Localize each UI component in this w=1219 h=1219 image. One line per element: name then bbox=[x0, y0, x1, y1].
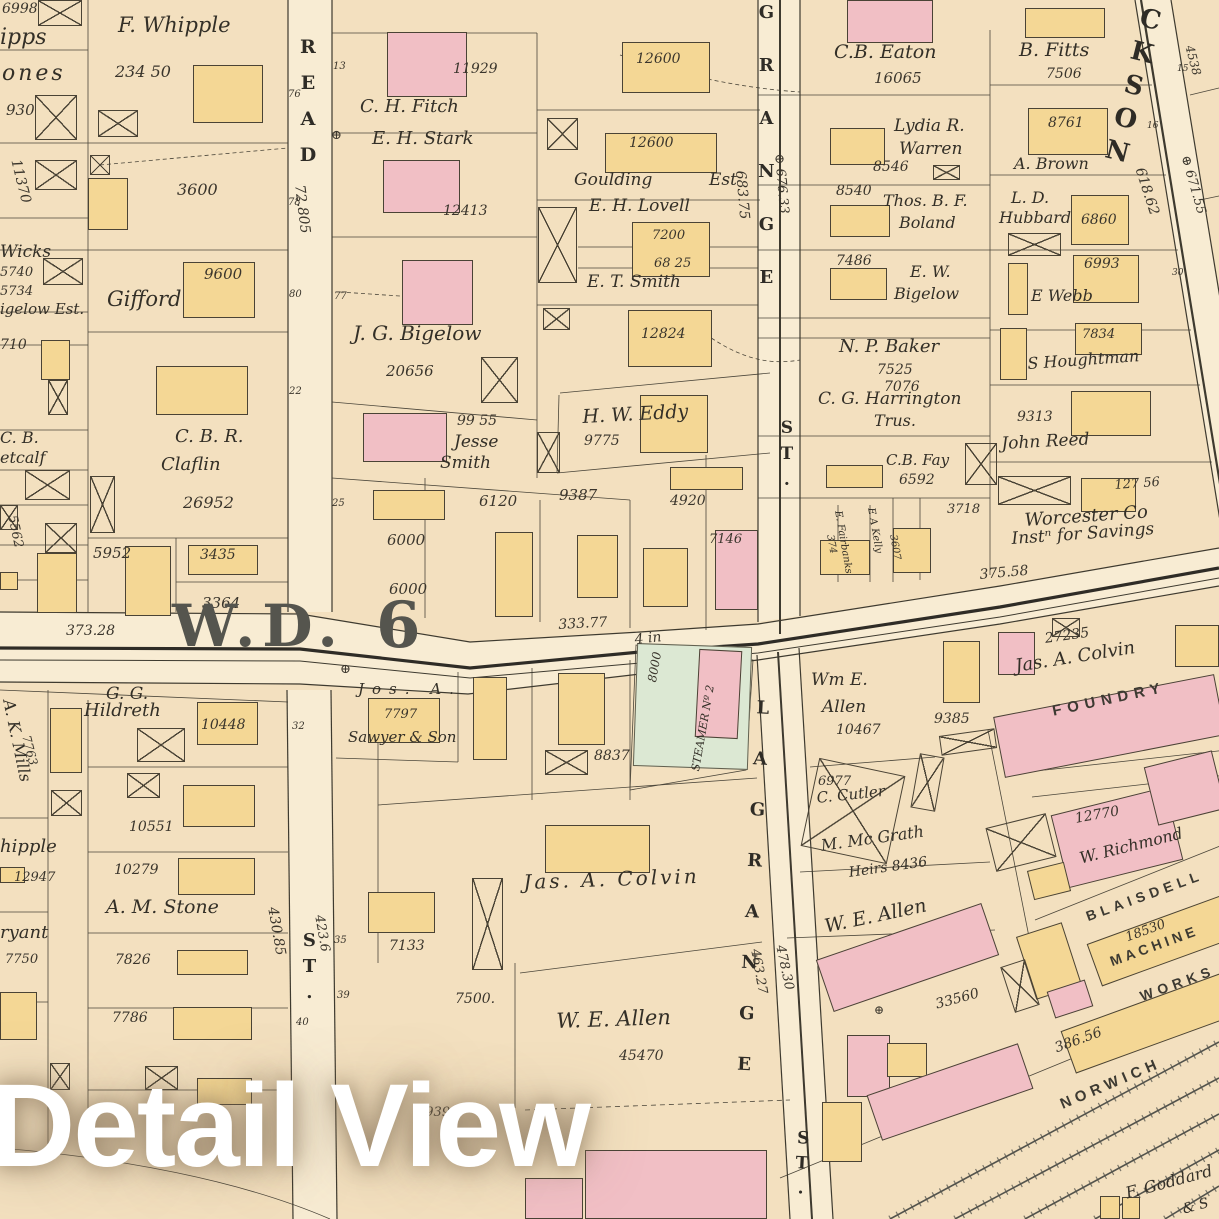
map-label: Jas. A. Colvin bbox=[1014, 639, 1136, 677]
map-label: BLAISDELL bbox=[1084, 868, 1205, 924]
map-label: 11929 bbox=[453, 62, 498, 77]
map-label: 30 bbox=[1172, 269, 1183, 278]
map-label: ST. bbox=[777, 418, 795, 496]
map-label: E. H. Stark bbox=[372, 130, 474, 149]
map-label: C. Cutler bbox=[816, 784, 886, 807]
map-label: 12770 bbox=[1074, 804, 1120, 826]
map-label: Jas. A. Colvin bbox=[523, 866, 700, 893]
map-label: hipple bbox=[0, 838, 57, 857]
map-label: 8546 bbox=[873, 160, 909, 175]
map-label: Hildreth bbox=[84, 702, 161, 721]
map-label: C. H. Fitch bbox=[360, 98, 459, 117]
map-label: 375.58 bbox=[979, 564, 1029, 583]
map-label: 3718 bbox=[947, 503, 980, 517]
map-label: 618.62 bbox=[1132, 166, 1161, 217]
map-label: 39 bbox=[337, 991, 350, 1002]
watermark-text: Detail View bbox=[0, 1058, 589, 1194]
labels-layer: 6998ippsones93011370Wicks57405734igelow … bbox=[0, 0, 1219, 1219]
map-label: 127 56 bbox=[1114, 476, 1160, 493]
map-label: John Reed bbox=[1001, 431, 1090, 453]
map-label: 3435 bbox=[200, 548, 236, 563]
map-label: 15 bbox=[1177, 65, 1188, 74]
map-label: ⊕ 671.55 bbox=[1178, 154, 1208, 216]
map-label: 72.805 bbox=[291, 184, 312, 234]
map-label: C. G. Harrington bbox=[818, 391, 962, 409]
map-label: NORWICH bbox=[1058, 1056, 1164, 1113]
map-label: L. D. bbox=[1011, 190, 1049, 207]
map-label: 68 25 bbox=[654, 257, 691, 271]
map-label: E A Kelly bbox=[865, 507, 883, 554]
map-label: 77 bbox=[334, 292, 347, 303]
map-label: 7786 bbox=[112, 1011, 148, 1026]
map-label: 386.56 bbox=[1053, 1025, 1104, 1056]
map-label: 7486 bbox=[836, 254, 872, 269]
map-label: 8761 bbox=[1048, 116, 1084, 131]
map-label: S Houghtman bbox=[1027, 348, 1140, 373]
map-label: 6 bbox=[376, 592, 428, 659]
map-label: 683.75 bbox=[732, 170, 751, 220]
map-label: 8837 bbox=[594, 749, 630, 764]
map-label: 10448 bbox=[201, 718, 246, 733]
map-label: 8540 bbox=[836, 184, 872, 199]
map-label: WORKS bbox=[1138, 963, 1217, 1004]
map-label: 6860 bbox=[1081, 213, 1117, 228]
map-label: ones bbox=[2, 62, 66, 85]
map-label: Gifford bbox=[107, 288, 182, 310]
map-label: ⊕ bbox=[874, 1004, 884, 1017]
map-label: 3600 bbox=[177, 182, 218, 199]
map-label: 25 bbox=[332, 499, 345, 510]
map-label: 9387 bbox=[559, 488, 597, 504]
map-label: Goulding bbox=[574, 172, 652, 190]
map-label: 10467 bbox=[836, 723, 881, 738]
map-label: 12600 bbox=[629, 136, 674, 151]
map-label: 9775 bbox=[584, 434, 620, 449]
map-label: 16 bbox=[1147, 122, 1158, 131]
map-label: 333.77 bbox=[558, 615, 608, 632]
map-label: 5740 bbox=[0, 266, 33, 280]
map-label: 6592 bbox=[899, 473, 935, 488]
map-label: Jos. A. bbox=[358, 682, 462, 698]
map-label: 7506 bbox=[1046, 67, 1082, 82]
map-label: & S bbox=[1181, 1196, 1210, 1217]
map-label: B. Fitts bbox=[1019, 41, 1089, 61]
map-label: W. E. Allen bbox=[556, 1006, 671, 1032]
map-label: A. Brown bbox=[1014, 156, 1089, 173]
map-label: 930 bbox=[6, 103, 35, 119]
map-label: 7750 bbox=[5, 953, 38, 967]
map-label: ⊕ bbox=[331, 129, 342, 143]
map-label: READ bbox=[297, 36, 317, 180]
atlas-map: 6998ippsones93011370Wicks57405734igelow … bbox=[0, 0, 1219, 1219]
map-label: 9313 bbox=[1017, 410, 1053, 425]
map-label: J. G. Bigelow bbox=[353, 323, 481, 344]
map-label: 5734 bbox=[0, 285, 33, 299]
map-label: 12824 bbox=[641, 327, 686, 342]
map-label: Sawyer & Son bbox=[348, 730, 456, 746]
map-label: M. Mc Grath bbox=[820, 824, 925, 855]
map-label: E. T. Smith bbox=[587, 274, 681, 292]
map-label: 12947 bbox=[14, 871, 55, 885]
map-label: C.B. Fay bbox=[886, 453, 949, 469]
map-label: 12600 bbox=[636, 52, 681, 67]
map-label: 11370 bbox=[8, 158, 33, 205]
map-label: 12413 bbox=[443, 204, 488, 219]
map-label: 9385 bbox=[934, 712, 970, 727]
map-label: Jesse bbox=[454, 434, 498, 452]
map-label: 33560 bbox=[934, 986, 981, 1012]
map-label: 20656 bbox=[386, 364, 434, 380]
map-label: Wicks bbox=[0, 244, 51, 262]
map-label: FOUNDRY bbox=[1051, 680, 1167, 719]
map-label: 7146 bbox=[709, 533, 742, 547]
map-label: 6998 bbox=[2, 2, 38, 17]
map-label: Trus. bbox=[874, 413, 916, 430]
map-label: N. P. Baker bbox=[839, 338, 939, 357]
map-label: E. H. Lovell bbox=[589, 198, 690, 216]
map-label: 5562 bbox=[5, 514, 25, 549]
map-label: 40 bbox=[296, 1018, 309, 1029]
map-label: 27235 bbox=[1044, 626, 1090, 647]
map-label: 374 bbox=[824, 534, 838, 555]
map-label: 26952 bbox=[183, 495, 234, 512]
map-label: Warren bbox=[899, 141, 962, 159]
map-label: Hubbard bbox=[999, 210, 1071, 227]
map-label: 7133 bbox=[389, 939, 425, 954]
map-label: etcalf bbox=[0, 450, 45, 467]
map-label: C.B. Eaton bbox=[834, 43, 936, 63]
map-label: 710 bbox=[0, 338, 27, 353]
map-label: 6120 bbox=[479, 494, 517, 510]
map-label: 4920 bbox=[670, 494, 706, 509]
map-label: ipps bbox=[0, 26, 47, 49]
map-label: STEAMER Nº 2 bbox=[690, 684, 717, 772]
map-label: E Webb bbox=[1031, 288, 1093, 305]
map-label: 35 bbox=[334, 936, 347, 947]
map-label: W. Richmond bbox=[1078, 825, 1185, 867]
map-label: 8000 bbox=[646, 651, 664, 683]
map-label: 80 bbox=[289, 290, 302, 301]
map-label: 22 bbox=[289, 387, 302, 398]
map-label: W.D. bbox=[172, 596, 345, 657]
map-label: 13 bbox=[333, 62, 346, 73]
map-label: igelow Est. bbox=[0, 302, 84, 318]
map-label: ⊕ bbox=[340, 663, 351, 677]
map-label: Wm E. bbox=[811, 672, 868, 690]
map-label: Bigelow bbox=[894, 286, 959, 303]
map-label: 99 55 bbox=[457, 414, 497, 429]
map-label: 32 bbox=[292, 722, 305, 733]
map-label: ST. bbox=[790, 1128, 812, 1204]
map-label: Boland bbox=[899, 215, 956, 232]
map-label: 7797 bbox=[384, 708, 417, 722]
map-label: Allen bbox=[822, 699, 866, 717]
map-label: H. W. Eddy bbox=[582, 402, 689, 427]
map-label: LAGRANGE bbox=[732, 697, 772, 1105]
map-label: ryant bbox=[0, 924, 48, 943]
map-label: C. B. R. bbox=[175, 428, 244, 447]
map-label: 6000 bbox=[387, 533, 425, 549]
map-label: 45470 bbox=[619, 1049, 664, 1064]
map-label: 3607 bbox=[887, 534, 902, 561]
map-label: Thos. B. F. bbox=[883, 193, 968, 210]
map-label: 7525 bbox=[877, 363, 913, 378]
map-label: Claflin bbox=[161, 456, 221, 475]
map-label: 5952 bbox=[93, 546, 131, 562]
map-label: F. Whipple bbox=[118, 14, 231, 36]
map-label: Smith bbox=[440, 455, 491, 473]
map-label: 10279 bbox=[114, 863, 159, 878]
map-label: 7834 bbox=[1082, 328, 1115, 342]
map-label: 4 in bbox=[634, 630, 662, 647]
map-label: A. M. Stone bbox=[106, 898, 219, 918]
map-label: 478.30 bbox=[773, 944, 796, 991]
map-label: W. E. Allen bbox=[823, 896, 928, 937]
map-label: 10551 bbox=[129, 820, 174, 835]
map-label: 7500. bbox=[455, 992, 495, 1007]
map-label: 430.85 bbox=[265, 906, 288, 957]
map-label: Lydia R. bbox=[894, 118, 965, 136]
map-label: Heirs 8436 bbox=[848, 855, 928, 881]
map-label: CKSON bbox=[1099, 2, 1167, 174]
map-label: 7200 bbox=[652, 229, 685, 243]
map-label: 7826 bbox=[115, 953, 151, 968]
map-label: E. W. bbox=[910, 264, 951, 281]
map-label: 9600 bbox=[204, 267, 242, 283]
map-label: 6993 bbox=[1084, 257, 1120, 272]
map-label: 373.28 bbox=[66, 624, 115, 639]
map-label: C. B. bbox=[0, 430, 39, 447]
map-label: 234 50 bbox=[115, 64, 171, 81]
map-label: 16065 bbox=[874, 71, 922, 87]
